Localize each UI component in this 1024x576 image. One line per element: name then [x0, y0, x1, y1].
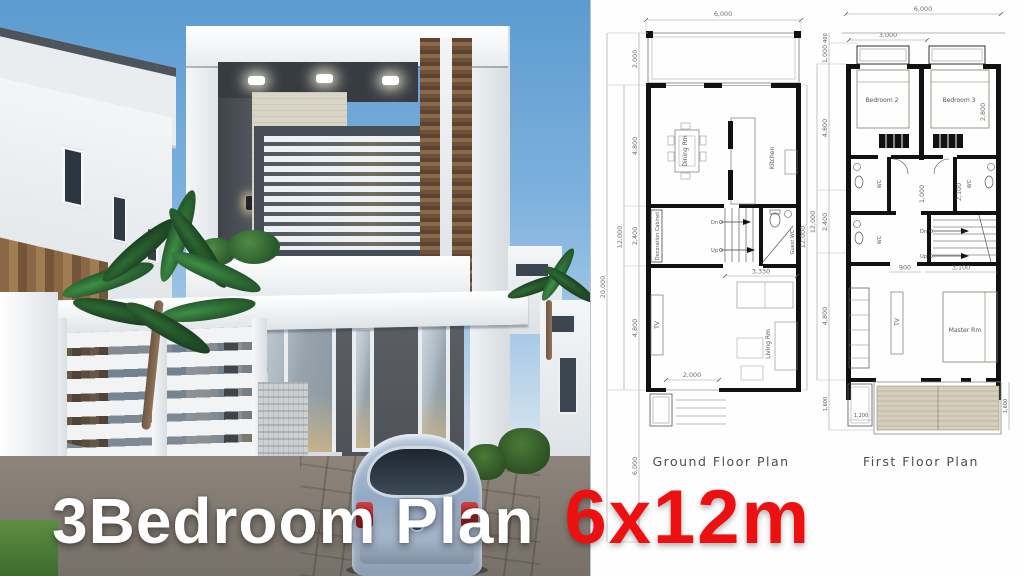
dim-label: 20,000	[599, 276, 607, 298]
room-label-tv: TV	[654, 320, 661, 330]
grass-patch	[0, 520, 58, 576]
stairs-dn-label: Dn	[711, 220, 718, 226]
dim-label: 12,000	[616, 226, 624, 248]
stairs-dn-label: Dn	[920, 229, 927, 235]
room-label-dining: Dining Rm	[682, 135, 689, 166]
dim-label: 400	[823, 33, 829, 43]
dim-label: 2,000	[683, 371, 701, 379]
right-house-door	[558, 356, 578, 414]
balcony-plant	[228, 230, 280, 264]
dim-label: 3,000	[879, 31, 897, 39]
floor-plans-panel: 6,000	[590, 0, 1024, 576]
dim-label: 6,000	[914, 5, 932, 13]
car-bumper	[360, 542, 474, 564]
room-label-bedroom3: Bedroom 3	[943, 97, 976, 104]
louver-window-slats	[264, 136, 430, 250]
room-label-cabinet: Decoration Cabinet	[655, 212, 661, 260]
room-label-living: Living Rm	[765, 329, 772, 359]
dim-label: 2,800	[979, 103, 987, 121]
stairs-up-label: Up	[920, 254, 927, 260]
ceiling-light	[248, 76, 265, 85]
stairs-up-label: Up	[711, 248, 718, 254]
left-house-window	[112, 194, 127, 243]
room-label-wc: WC	[877, 179, 883, 188]
room-label-bedroom2: Bedroom 2	[866, 97, 899, 104]
dim-label: 2,000	[631, 50, 639, 68]
dim-label: 1,600	[823, 397, 829, 411]
first-plan-title: First Floor Plan	[863, 454, 979, 469]
hedge-plant	[498, 428, 550, 474]
dim-label: 6,000	[714, 10, 732, 18]
dim-label: 6,000	[631, 457, 639, 475]
room-label-kitchen: Kitchen	[769, 147, 776, 170]
dim-label: 2,100	[955, 183, 963, 201]
palm-trunk	[546, 300, 552, 360]
car-taillight	[356, 502, 373, 528]
room-label-master: Master Rm	[949, 327, 982, 334]
dim-label: 1,000	[918, 185, 926, 203]
dim-label: 4,800	[631, 319, 639, 337]
dim-label: 2,400	[631, 227, 639, 245]
dim-label: 900	[899, 264, 911, 272]
ford-badge-icon	[410, 522, 424, 532]
dim-label: 12,000	[799, 226, 807, 248]
car-taillight	[461, 502, 478, 528]
ground-plan-title: Ground Floor Plan	[652, 454, 789, 469]
room-label-tv: TV	[894, 317, 901, 327]
dim-label: 3,100	[952, 264, 970, 272]
dim-label: 1,200	[854, 413, 868, 419]
thumbnail: 6,000	[0, 0, 1024, 576]
ground-floor-plan: 6,000	[599, 10, 807, 542]
blue-hatchback-car	[352, 430, 482, 576]
room-label-wc: WC	[967, 179, 973, 188]
room-label-wc: WC	[877, 235, 883, 244]
dim-label: 1,000	[821, 45, 829, 63]
dim-label: 1,600	[1003, 399, 1009, 413]
dim-label: 2,400	[821, 213, 829, 231]
ceiling-light	[382, 76, 399, 85]
right-house-window	[548, 314, 576, 334]
dim-label: 12,000	[809, 211, 817, 233]
dim-label: 3,330	[752, 268, 770, 276]
dim-label: 4,800	[821, 307, 829, 325]
left-house-window	[62, 145, 84, 208]
main-house-right-column	[470, 26, 510, 472]
floor-plans-svg: 6,000	[591, 0, 1024, 576]
room-label-guest-wc: Guest WC	[790, 229, 796, 254]
dim-label: 4,800	[631, 137, 639, 155]
car-rear-window	[367, 446, 467, 498]
first-floor-plan: 6,000 3,000	[809, 5, 1009, 469]
house-3d-render	[0, 0, 590, 576]
ceiling-light	[316, 74, 333, 83]
dim-label: 4,800	[821, 119, 829, 137]
